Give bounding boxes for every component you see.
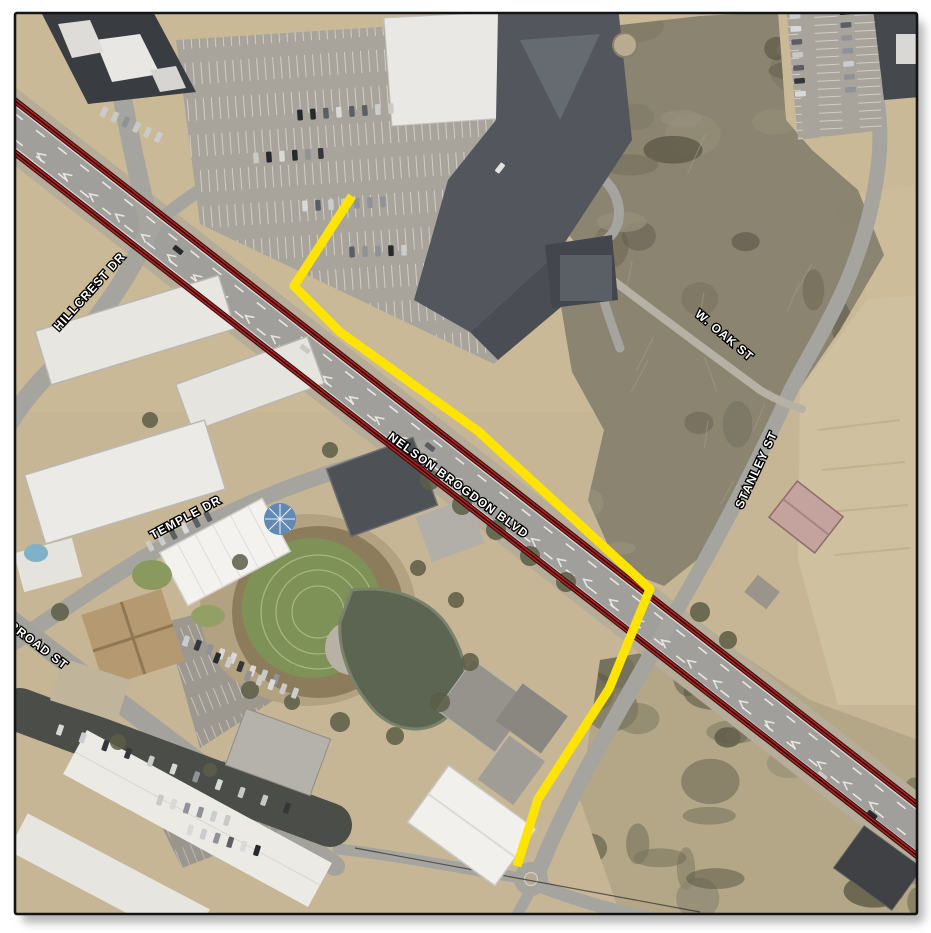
splash-pad bbox=[264, 503, 296, 535]
aerial-map-image: HILLCREST DR TEMPLE DR BROAD ST NELSON B… bbox=[0, 0, 931, 933]
map-document: HILLCREST DR TEMPLE DR BROAD ST NELSON B… bbox=[0, 0, 931, 933]
pool bbox=[24, 544, 48, 562]
map-content: HILLCREST DR TEMPLE DR BROAD ST NELSON B… bbox=[0, 0, 931, 933]
